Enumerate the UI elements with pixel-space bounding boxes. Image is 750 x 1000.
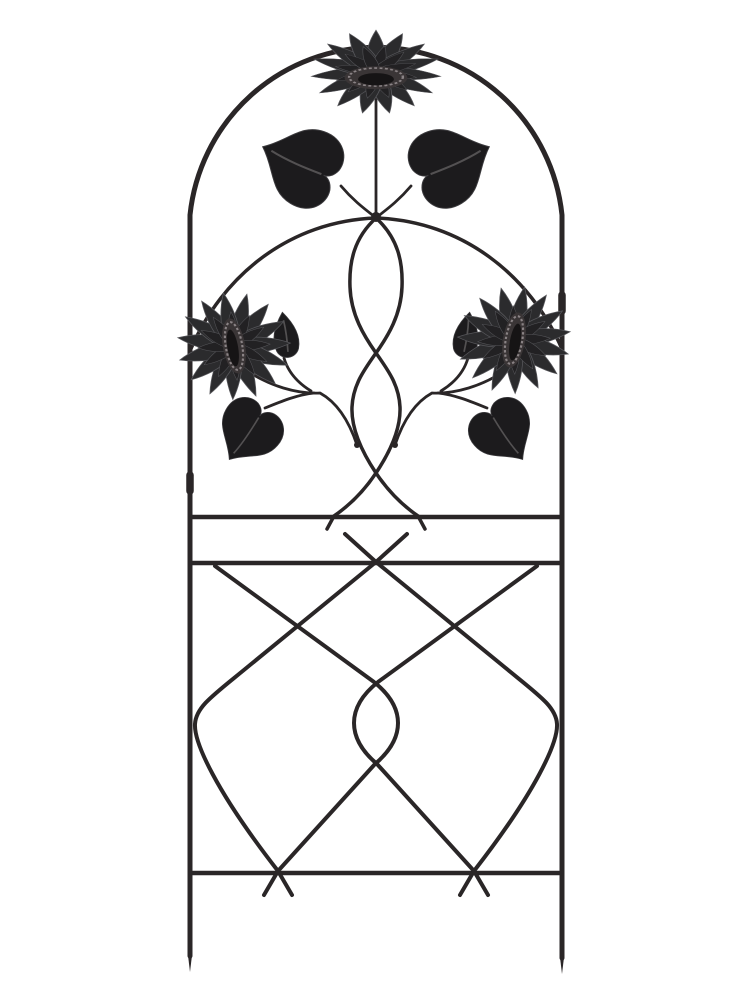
trellis-illustration <box>0 0 750 1000</box>
center-junction-weld <box>371 212 381 222</box>
right-stem-weld <box>392 442 398 448</box>
left-stem-weld <box>354 442 360 448</box>
top-sunflower-disc <box>345 66 408 89</box>
product-photo <box>0 0 750 1000</box>
